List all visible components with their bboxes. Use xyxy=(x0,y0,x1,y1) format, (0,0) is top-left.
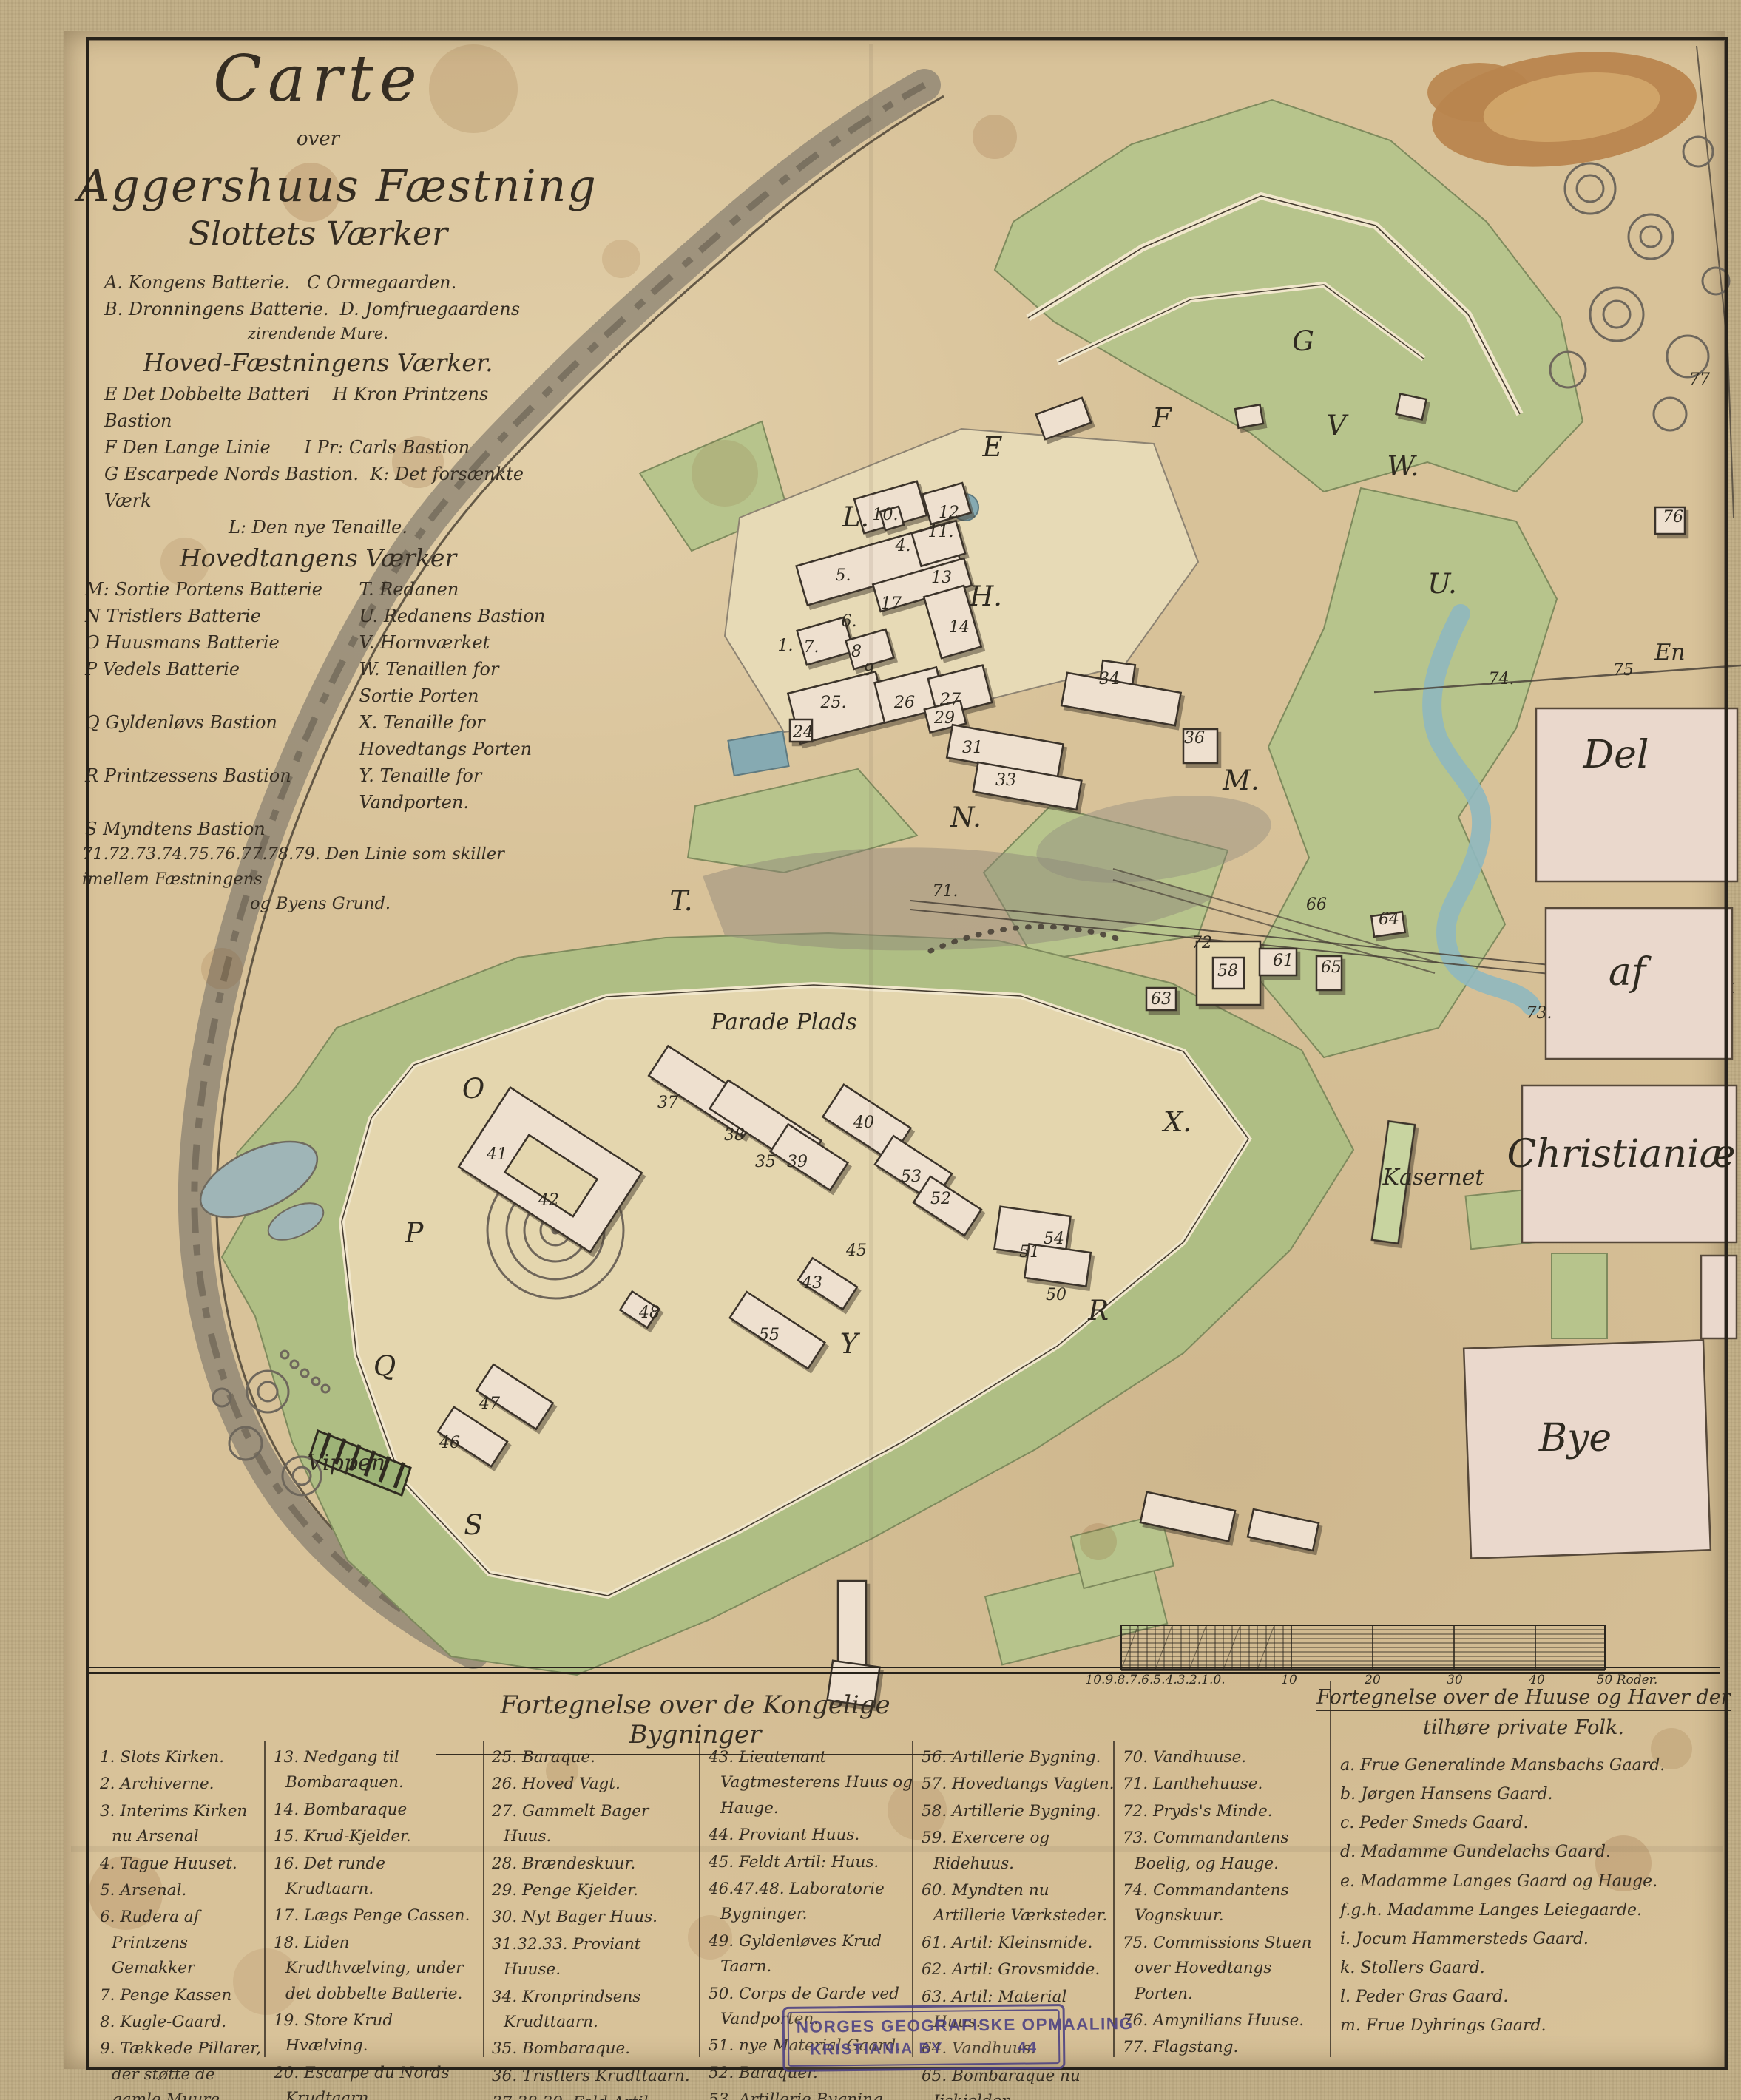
list-item: 60. Myndten nu Artillerie Værksteder. xyxy=(922,1878,1115,1929)
map-label: 41 xyxy=(486,1145,507,1164)
map-label: X. xyxy=(1161,1106,1191,1138)
legend-column-1: 1. Slots Kirken.2. Archiverne.3. Interim… xyxy=(100,1745,266,2100)
list-item: 3. Interims Kirken nu Arsenal xyxy=(100,1799,266,1850)
index-entry: U. Redanens Bastion xyxy=(359,603,559,629)
legend-separator-line xyxy=(89,1667,1720,1668)
map-label: 11. xyxy=(928,523,954,541)
map-label: 53 xyxy=(901,1168,922,1186)
map-label: 47 xyxy=(479,1395,500,1413)
index-line: E Det Dobbelte Batteri H Kron Printzens … xyxy=(78,381,558,434)
list-item: 44. Proviant Huus. xyxy=(709,1823,913,1848)
list-item: 16. Det runde Krudtaarn. xyxy=(274,1852,475,1903)
index-line: G Escarpede Nords Bastion. K: Det forsæn… xyxy=(78,461,558,514)
index-line: B. Dronningens Batterie. D. Jomfruegaard… xyxy=(78,296,558,322)
map-label: 24 xyxy=(792,723,814,742)
list-item: 62. Artil: Grovsmidde. xyxy=(922,1957,1115,1982)
map-label: 27 xyxy=(939,691,961,709)
map-label: 6. xyxy=(842,612,857,631)
index-line: A. Kongens Batterie. C Ormegaarden. xyxy=(78,269,558,296)
list-item: e. Madamme Langes Gaard og Hauge. xyxy=(1340,1867,1725,1896)
map-label: 52 xyxy=(930,1190,951,1208)
map-label: P xyxy=(405,1217,425,1249)
list-item: 61. Artil: Kleinsmide. xyxy=(922,1931,1115,1956)
stamp-institution: NORGES GEOGRAFISKE OPMAALING xyxy=(797,2015,1051,2037)
map-label: 26 xyxy=(893,694,915,712)
index-line: F Den Lange Linie I Pr: Carls Bastion xyxy=(78,434,558,461)
index-line: S Myndtens Bastion xyxy=(78,816,558,842)
map-label: 46 xyxy=(439,1434,460,1452)
map-label: G xyxy=(1292,325,1314,357)
map-label: 31 xyxy=(962,739,983,757)
index-entry: S Myndtens Bastion xyxy=(78,816,359,842)
list-item: 43. Lieutenant Vagtmesterens Huus og Hau… xyxy=(709,1745,913,1821)
list-item: 71. Lanthehuuse. xyxy=(1123,1772,1321,1797)
list-item: 74. Commandantens Vognskuur. xyxy=(1123,1878,1321,1929)
map-label: 77 xyxy=(1689,370,1710,389)
private-houses-title: Fortegnelse over de Huuse og Haver der t… xyxy=(1316,1683,1731,1743)
index-entry: P Vedels Batterie xyxy=(78,656,359,709)
map-label: 36 xyxy=(1184,729,1205,748)
map-label: 51 xyxy=(1019,1243,1040,1261)
index-line: zirendende Mure. xyxy=(78,322,558,346)
list-item: 15. Krud-Kjelder. xyxy=(274,1824,475,1849)
list-item: a. Frue Generalinde Mansbachs Gaard. xyxy=(1340,1751,1725,1780)
list-item: 28. Brændeskuur. xyxy=(492,1852,690,1877)
map-label: 45 xyxy=(845,1242,867,1260)
list-item: i. Jocum Hammersteds Gaard. xyxy=(1340,1925,1725,1954)
map-label: E xyxy=(981,431,1002,463)
map-label: Vippen xyxy=(307,1450,385,1476)
list-item: m. Frue Dyhrings Gaard. xyxy=(1340,2011,1725,2040)
map-label: 10. xyxy=(873,506,899,524)
map-label: 63 xyxy=(1151,990,1172,1009)
list-item: 73. Commandantens Boelig, og Hauge. xyxy=(1123,1826,1321,1877)
column-divider xyxy=(264,1741,266,2057)
title-block: Carte over Aggershuus Fæstning Slottets … xyxy=(78,44,558,917)
list-item: 2. Archiverne. xyxy=(100,1772,266,1797)
index-entry: M: Sortie Portens Batterie xyxy=(78,576,359,603)
list-item: 49. Gyldenløves Krud Taarn. xyxy=(709,1929,913,1980)
map-label: W. xyxy=(1387,450,1419,482)
map-label: 76 xyxy=(1663,508,1683,526)
index-entry: Q Gyldenløvs Bastion xyxy=(78,709,359,762)
private-title-line2: tilhøre private Folk. xyxy=(1423,1716,1624,1741)
list-item: 57. Hovedtangs Vagten. xyxy=(922,1772,1115,1797)
map-label: S xyxy=(464,1509,482,1541)
index-line: N Tristlers BatterieU. Redanens Bastion xyxy=(78,603,558,629)
map-label: 65 xyxy=(1321,958,1342,977)
map-label: Parade Plads xyxy=(710,1009,857,1035)
list-item: 75. Commissions Stuen over Hovedtangs Po… xyxy=(1123,1931,1321,2007)
map-label: 14 xyxy=(949,618,970,637)
list-item: 19. Store Krud Hvælving. xyxy=(274,2008,475,2059)
list-item: 58. Artillerie Bygning. xyxy=(922,1799,1115,1824)
map-label: 38 xyxy=(724,1126,745,1145)
archive-stamp-inner: NORGES GEOGRAFISKE OPMAALING KRISTIANIA … xyxy=(788,2009,1061,2067)
list-item: 8. Kugle-Gaard. xyxy=(100,2010,266,2035)
list-item: 53. Artillerie Bygning. xyxy=(709,2087,913,2100)
index-entry: X. Tenaille for Hovedtangs Porten xyxy=(359,709,559,762)
map-label: 71. xyxy=(933,882,959,901)
list-item: k. Stollers Gaard. xyxy=(1340,1954,1725,1982)
list-item: c. Peder Smeds Gaard. xyxy=(1340,1809,1725,1837)
map-label: V xyxy=(1327,410,1349,441)
map-label: L. xyxy=(842,501,869,533)
column-divider xyxy=(699,1741,700,2057)
map-label: F xyxy=(1152,402,1172,434)
list-item: 29. Penge Kjelder. xyxy=(492,1878,690,1903)
map-label: 5. xyxy=(836,566,851,585)
list-item: 77. Flagstang. xyxy=(1123,2035,1321,2060)
map-label: 34 xyxy=(1099,670,1120,688)
list-item: 31.32.33. Proviant Huuse. xyxy=(492,1932,690,1983)
index-line: R Printzessens BastionY. Tenaille for Va… xyxy=(78,762,558,816)
archive-stamp: NORGES GEOGRAFISKE OPMAALING KRISTIANIA … xyxy=(782,2004,1066,2072)
list-item: 76. Amynilians Huuse. xyxy=(1123,2008,1321,2033)
map-label: 25. xyxy=(820,694,847,712)
map-label: 17 xyxy=(881,595,902,613)
index-entry: N Tristlers Batterie xyxy=(78,603,359,629)
list-item: d. Madamme Gundelachs Gaard. xyxy=(1340,1837,1725,1866)
list-item: 30. Nyt Bager Huus. xyxy=(492,1905,690,1930)
private-houses-list: a. Frue Generalinde Mansbachs Gaard.b. J… xyxy=(1340,1751,1725,2041)
legend-separator-line-2 xyxy=(89,1672,1720,1674)
list-item: 17. Lægs Penge Cassen. xyxy=(274,1903,475,1928)
map-label: 64 xyxy=(1379,910,1399,929)
index-line: P Vedels BatterieW. Tenaillen for Sortie… xyxy=(78,656,558,709)
map-label: 12 xyxy=(939,504,959,522)
map-title-name: Aggershuus Fæstning xyxy=(78,160,558,212)
list-item: 56. Artillerie Bygning. xyxy=(922,1745,1115,1770)
list-item: 14. Bombaraque xyxy=(274,1798,475,1823)
list-item: 1. Slots Kirken. xyxy=(100,1745,266,1770)
map-sheet-page: EFGH.L.M.N.T.U.VW.X.YOPQRS1.4.5.6.7.89.1… xyxy=(0,0,1741,2100)
column-divider xyxy=(483,1741,484,2057)
list-item: 9. Tækkede Pillarer, der støtte de gamle… xyxy=(100,2036,266,2100)
list-item: 18. Liden Krudthvælving, under det dobbe… xyxy=(274,1931,475,2007)
legend-column-6: 70. Vandhuuse.71. Lanthehuuse.72. Pryds'… xyxy=(1123,1745,1321,2062)
index-entry xyxy=(359,816,559,842)
stamp-city: KRISTIANIA BY xyxy=(810,2040,944,2059)
index-entry: T. Redanen xyxy=(359,576,559,603)
list-item: 4. Tague Huuset. xyxy=(100,1852,266,1877)
list-item: 35. Bombaraque. xyxy=(492,2036,690,2062)
repair-patch xyxy=(1425,38,1703,181)
map-title-name2: Slottets Værker xyxy=(78,215,558,253)
list-item: 27. Gammelt Bager Huus. xyxy=(492,1799,690,1850)
list-item: 25. Baraque. xyxy=(492,1745,690,1770)
index-line: Hovedtangens Værker xyxy=(78,541,558,576)
list-item: 59. Exercere og Ridehuus. xyxy=(922,1826,1115,1877)
list-item: f.g.h. Madamme Langes Leiegaarde. xyxy=(1340,1896,1725,1925)
map-label: 75 xyxy=(1613,661,1634,680)
map-label: 8 xyxy=(851,643,862,661)
list-item: 26. Hoved Vagt. xyxy=(492,1772,690,1797)
map-label: 73. xyxy=(1527,1004,1552,1023)
map-label: 48 xyxy=(638,1304,660,1322)
map-title-over: over xyxy=(78,128,558,150)
map-label: 54 xyxy=(1044,1230,1064,1248)
list-item: 70. Vandhuuse. xyxy=(1123,1745,1321,1770)
map-label: 35 xyxy=(755,1153,776,1171)
map-label: 50 xyxy=(1046,1286,1066,1304)
map-label: 13 xyxy=(931,569,952,587)
map-label: En xyxy=(1654,640,1685,665)
map-label: 42 xyxy=(538,1191,559,1210)
map-label: H. xyxy=(969,580,1002,612)
column-divider xyxy=(1113,1741,1115,2057)
map-label: 1. xyxy=(778,637,794,655)
map-label: 61 xyxy=(1273,952,1294,970)
list-item: 37.38.39. Feld Artil: Huuse. xyxy=(492,2090,690,2100)
map-label: Q xyxy=(373,1350,396,1382)
private-title-line1: Fortegnelse over de Huuse og Haver der xyxy=(1316,1686,1730,1711)
map-label: 55 xyxy=(759,1326,780,1344)
index-entry: O Huusmans Batterie xyxy=(78,629,359,656)
map-label: 37 xyxy=(657,1094,678,1112)
map-label: 66 xyxy=(1306,895,1327,914)
index-entry: Y. Tenaille for Vandporten. xyxy=(359,762,559,816)
list-item: 34. Kronprindsens Krudttaarn. xyxy=(492,1985,690,2036)
map-label: 7. xyxy=(804,638,819,657)
map-label: 72 xyxy=(1191,934,1212,952)
index-line: Hoved-Fæstningens Værker. xyxy=(78,345,558,381)
map-title: Carte xyxy=(78,44,558,115)
list-item: 13. Nedgang til Bombaraquen. xyxy=(274,1745,475,1796)
map-label: M. xyxy=(1222,765,1260,796)
list-item: 5. Arsenal. xyxy=(100,1878,266,1903)
works-index: A. Kongens Batterie. C Ormegaarden.B. Dr… xyxy=(78,269,558,917)
map-label: O xyxy=(462,1073,484,1105)
list-item: 46.47.48. Laboratorie Bygninger. xyxy=(709,1877,913,1928)
map-label: 40 xyxy=(853,1114,874,1132)
map-label: 39 xyxy=(787,1153,808,1171)
map-label: 29 xyxy=(933,709,955,728)
scale-bar xyxy=(1121,1625,1605,1670)
map-label: 9. xyxy=(864,661,879,680)
list-item: l. Peder Gras Gaard. xyxy=(1340,1982,1725,2011)
map-label: Bye xyxy=(1538,1416,1612,1460)
index-entry: R Printzessens Bastion xyxy=(78,762,359,816)
map-label: R xyxy=(1087,1295,1109,1327)
map-label: Kasernet xyxy=(1382,1165,1485,1190)
stamp-number: 44 xyxy=(1018,2039,1038,2056)
list-item: b. Jørgen Hansens Gaard. xyxy=(1340,1780,1725,1809)
map-label: 4. xyxy=(895,537,911,555)
index-line: M: Sortie Portens BatterieT. Redanen xyxy=(78,576,558,603)
map-label: Y xyxy=(840,1328,861,1360)
list-item: 7. Penge Kassen xyxy=(100,1983,266,2008)
map-label: T. xyxy=(669,885,692,917)
map-label: Del xyxy=(1582,733,1649,777)
list-item: 6. Rudera af Printzens Gemakker xyxy=(100,1905,266,1981)
index-line: og Byens Grund. xyxy=(78,892,558,917)
index-line: L: Den nye Tenaille. xyxy=(78,514,558,541)
list-item: 36. Tristlers Krudttaarn. xyxy=(492,2064,690,2089)
list-item: 20. Escarpe du Nords Krudtaarn xyxy=(274,2061,475,2100)
map-label: 43 xyxy=(801,1274,822,1293)
map-label: Christianiæ xyxy=(1507,1132,1736,1176)
list-item: 72. Pryds's Minde. xyxy=(1123,1799,1321,1824)
index-entry: W. Tenaillen for Sortie Porten xyxy=(359,656,559,709)
legend-column-2: 13. Nedgang til Bombaraquen.14. Bombaraq… xyxy=(274,1745,475,2100)
map-label: 74. xyxy=(1489,670,1515,688)
map-label: af xyxy=(1609,950,1652,995)
map-label: 58 xyxy=(1217,962,1238,980)
map-label: U. xyxy=(1427,568,1457,600)
list-item: 45. Feldt Artil: Huus. xyxy=(709,1850,913,1875)
index-line: 71.72.73.74.75.76.77.78.79. Den Linie so… xyxy=(78,842,558,892)
index-line: O Huusmans BatterieV. Hornværket xyxy=(78,629,558,656)
index-entry: V. Hornværket xyxy=(359,629,559,656)
index-line: Q Gyldenløvs BastionX. Tenaille for Hove… xyxy=(78,709,558,762)
map-label: N. xyxy=(950,802,981,833)
map-label: 33 xyxy=(995,771,1016,790)
legend-column-3: 25. Baraque.26. Hoved Vagt.27. Gammelt B… xyxy=(492,1745,690,2100)
